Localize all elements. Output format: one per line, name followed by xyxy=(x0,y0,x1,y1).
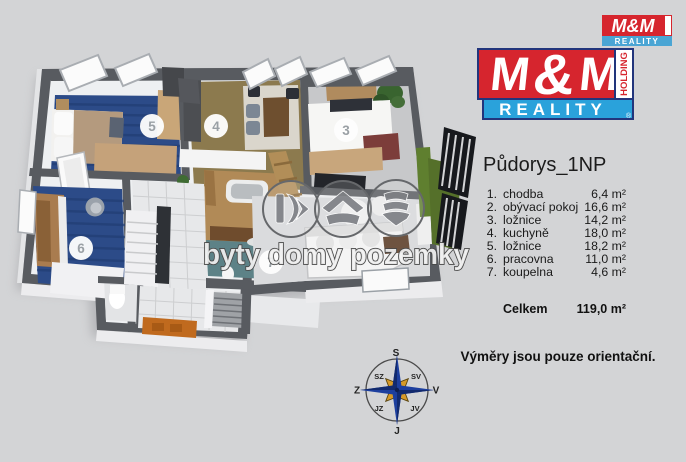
svg-text:7.: 7. xyxy=(487,265,497,279)
svg-text:obývací pokoj: obývací pokoj xyxy=(503,200,578,214)
svg-text:5.: 5. xyxy=(487,239,497,253)
svg-text:Z: Z xyxy=(354,386,360,397)
svg-text:pracovna: pracovna xyxy=(503,252,554,266)
svg-text:119,0 m²: 119,0 m² xyxy=(577,302,626,316)
svg-text:ložnice: ložnice xyxy=(503,239,541,253)
svg-text:14,2 m²: 14,2 m² xyxy=(584,213,626,227)
svg-text:3.: 3. xyxy=(487,213,497,227)
svg-text:M: M xyxy=(488,47,533,100)
svg-text:2.: 2. xyxy=(487,200,497,214)
svg-text:HOLDING: HOLDING xyxy=(619,52,630,96)
svg-text:SV: SV xyxy=(411,372,421,381)
svg-text:16,6 m²: 16,6 m² xyxy=(584,200,626,214)
svg-text:REALITY: REALITY xyxy=(615,37,660,46)
svg-text:18,2 m²: 18,2 m² xyxy=(584,239,626,253)
svg-text:byty domy pozemky: byty domy pozemky xyxy=(203,239,469,271)
svg-text:S: S xyxy=(393,348,400,359)
svg-text:SZ: SZ xyxy=(374,372,384,381)
svg-text:JV: JV xyxy=(410,404,419,413)
svg-text:&: & xyxy=(530,43,578,107)
svg-text:6,4 m²: 6,4 m² xyxy=(591,187,626,201)
svg-text:11,0 m²: 11,0 m² xyxy=(585,252,626,266)
svg-text:chodba: chodba xyxy=(503,187,544,201)
svg-text:M&M: M&M xyxy=(612,16,656,36)
svg-text:®: ® xyxy=(626,112,632,120)
svg-text:4,6 m²: 4,6 m² xyxy=(591,265,626,279)
svg-text:J: J xyxy=(394,426,400,437)
svg-text:5: 5 xyxy=(148,119,156,134)
svg-text:3: 3 xyxy=(342,123,350,138)
svg-text:18,0 m²: 18,0 m² xyxy=(584,226,626,240)
svg-text:4: 4 xyxy=(212,119,220,134)
svg-text:V: V xyxy=(433,386,440,397)
svg-text:Půdorys_1NP: Půdorys_1NP xyxy=(483,154,606,176)
svg-text:koupelna: koupelna xyxy=(503,265,553,279)
svg-text:ložnice: ložnice xyxy=(503,213,541,227)
svg-text:6.: 6. xyxy=(487,252,497,266)
svg-text:6: 6 xyxy=(77,241,85,256)
svg-text:Celkem: Celkem xyxy=(503,302,547,316)
svg-text:JZ: JZ xyxy=(375,404,384,413)
svg-text:4.: 4. xyxy=(487,226,497,240)
svg-text:1.: 1. xyxy=(487,187,497,201)
svg-text:Výměry jsou pouze orientační.: Výměry jsou pouze orientační. xyxy=(460,349,655,364)
svg-text:kuchyně: kuchyně xyxy=(503,226,549,240)
svg-text:REALITY: REALITY xyxy=(499,100,607,119)
